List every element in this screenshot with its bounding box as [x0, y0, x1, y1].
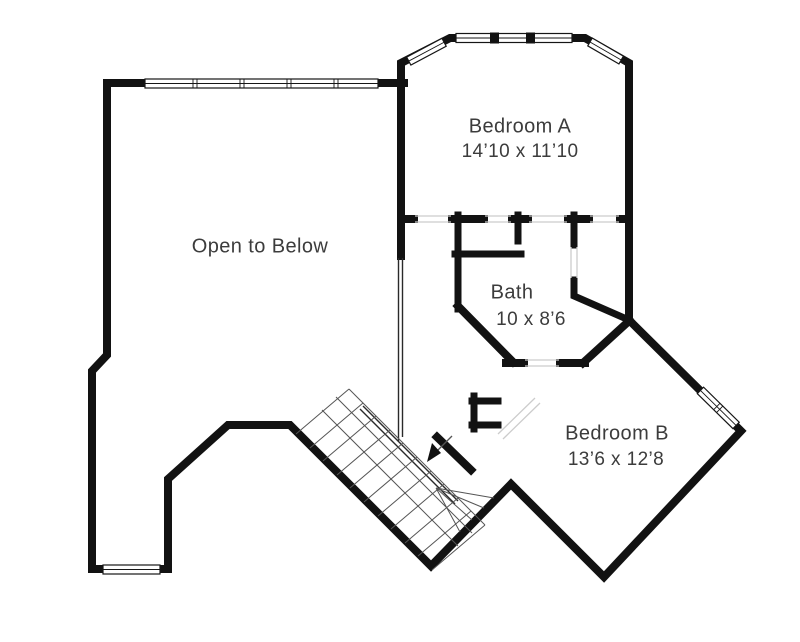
- bath-east-wall: [574, 280, 629, 320]
- window: [407, 38, 447, 65]
- landing-diagonal-wall: [437, 437, 471, 470]
- window: [145, 79, 378, 88]
- staircase: [296, 389, 494, 570]
- exterior-shell-wall: [92, 38, 741, 577]
- floor-plan-drawing: [0, 0, 800, 642]
- room-label-bath: Bath: [491, 282, 534, 305]
- landing-walls: [472, 396, 498, 429]
- window: [456, 33, 572, 44]
- room-label-open-to-below: Open to Below: [192, 236, 328, 259]
- room-dimensions-bedroom-a: 14’10 x 11’10: [462, 141, 579, 163]
- windows: [103, 33, 739, 575]
- room-dimensions-bedroom-b: 13’6 x 12’8: [568, 449, 664, 471]
- room-dimensions-bath: 10 x 8’6: [496, 309, 566, 331]
- window: [588, 38, 624, 64]
- exterior-walls: [92, 38, 741, 577]
- floor-plan: Open to Below Bedroom A 14’10 x 11’10 Ba…: [0, 0, 800, 642]
- room-label-bedroom-a: Bedroom A: [469, 116, 572, 139]
- room-label-bedroom-b: Bedroom B: [565, 423, 669, 446]
- window: [697, 387, 739, 428]
- bedroom-b-northwest-wall: [583, 321, 629, 363]
- window: [103, 565, 160, 574]
